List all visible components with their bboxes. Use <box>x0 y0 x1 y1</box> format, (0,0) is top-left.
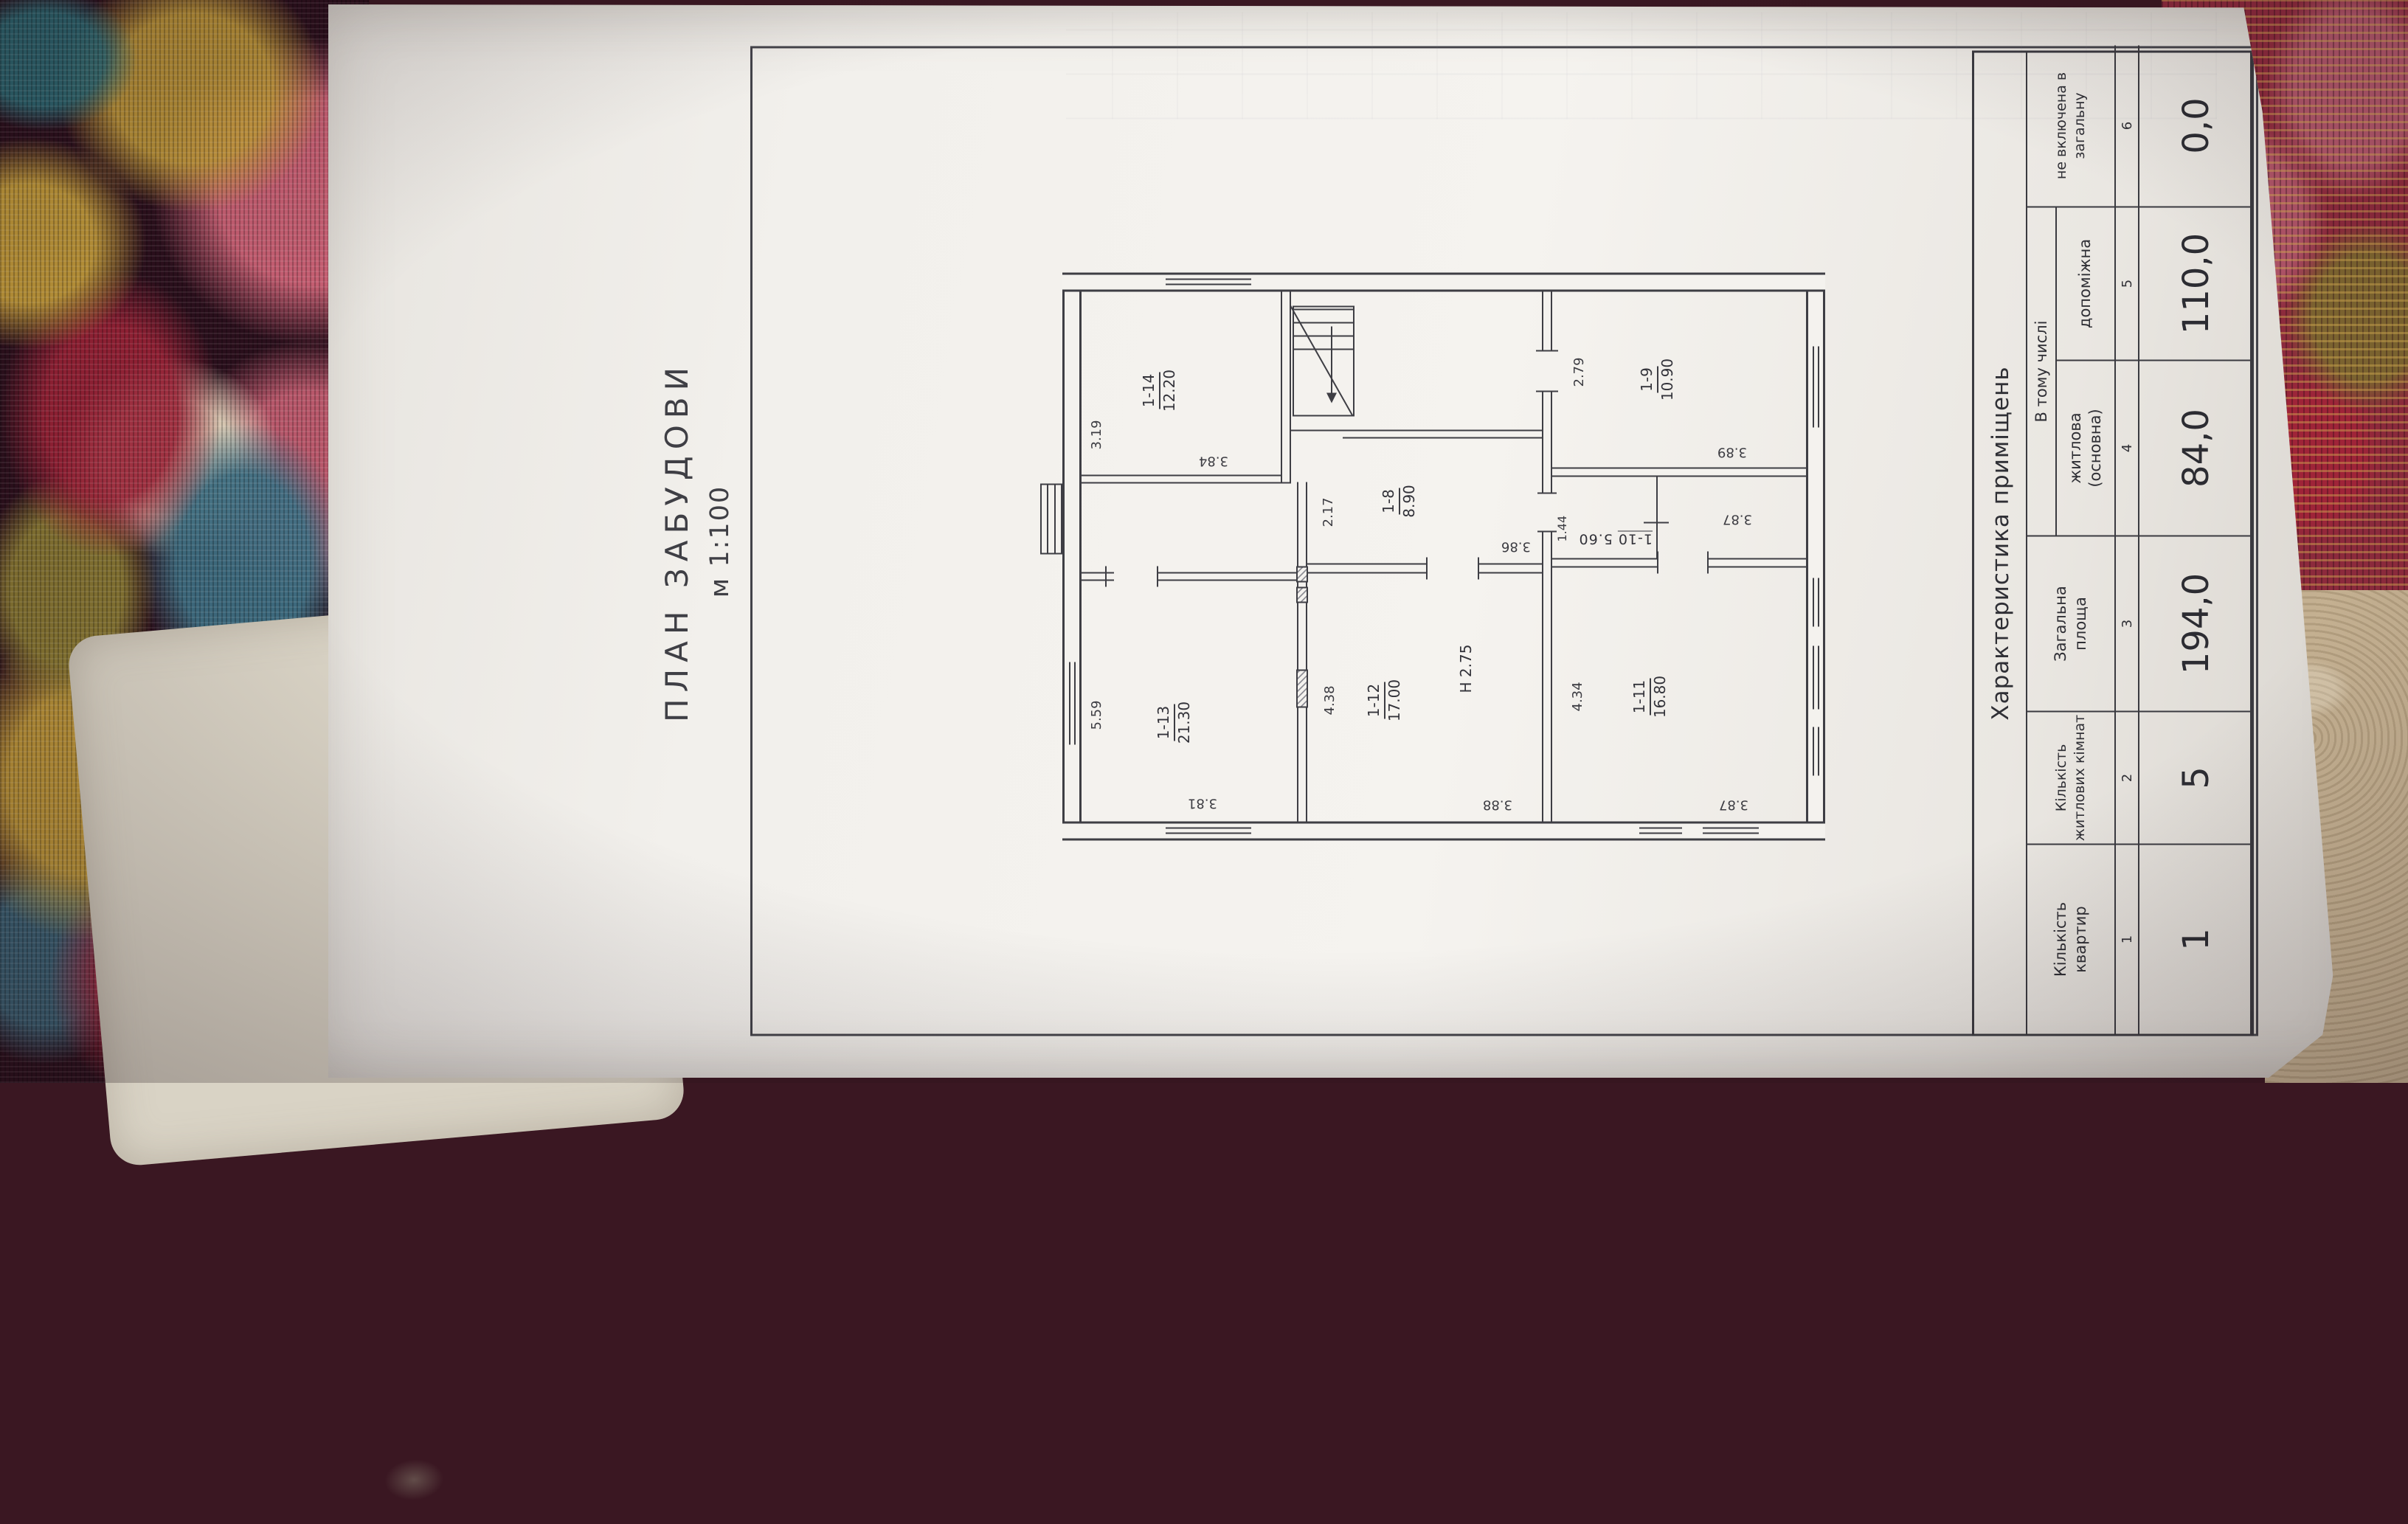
dim-1-9-width: 2.79 <box>1571 357 1587 387</box>
room-label-1-8: 1-8 8.90 <box>1380 457 1419 545</box>
dim-1-11-depth: 3.87 <box>1682 797 1748 812</box>
flue-block-b <box>1296 586 1308 603</box>
door-tick <box>1536 350 1558 351</box>
wall-room12-right-upper <box>1307 563 1428 573</box>
document-title-block: ПЛАН ЗАБУДОВИ м 1:100 <box>659 4 735 1078</box>
wall-room8-stairhall <box>1343 429 1542 438</box>
window-top-wall <box>1062 662 1082 744</box>
door-tick <box>1478 557 1479 579</box>
door-vestibule-hall <box>1282 361 1290 405</box>
window-left-wall-room13 <box>1166 821 1251 840</box>
floor-plan: 1-13 21.30 5.59 3.81 1-14 12.20 3.19 3.8… <box>1062 272 1825 840</box>
room-area: 21.30 <box>1175 674 1194 770</box>
col-header-not-included: не включена в загальну <box>2027 45 2114 206</box>
window-right-wall-room14 <box>1166 272 1251 291</box>
table-title: Характеристика приміщень <box>1974 52 2027 1033</box>
door-tick <box>1157 566 1158 586</box>
room-area: 8.90 <box>1400 457 1419 545</box>
wall-mid-bottom-center <box>1542 390 1552 493</box>
col-header-apartments: Кількість квартир <box>2027 843 2114 1033</box>
dim-1-9-depth: 3.89 <box>1681 444 1747 460</box>
dim-1-14-width: 3.19 <box>1089 420 1104 449</box>
stair-tread <box>1294 322 1353 323</box>
dim-1-10-depth: 3.87 <box>1686 511 1752 527</box>
col-num-2: 2 <box>2114 710 2138 843</box>
room-area: 10.90 <box>1658 331 1677 427</box>
entry-door-opening <box>1065 492 1079 545</box>
wall-mid-bottom-right <box>1542 291 1552 350</box>
col-num-5: 5 <box>2114 206 2138 359</box>
exterior-wall-top <box>1062 272 1082 840</box>
felt-stain <box>383 1457 445 1503</box>
room-label-1-9: 1-9 10.90 <box>1638 331 1677 427</box>
room-label-1-13: 1-13 21.30 <box>1155 674 1194 770</box>
door-tick <box>1537 530 1557 532</box>
door-tick <box>1536 390 1558 392</box>
page-title: ПЛАН ЗАБУДОВИ <box>659 4 695 1078</box>
room-area: 17.00 <box>1385 652 1404 748</box>
room10-divider-line <box>1656 477 1658 558</box>
wall-room10-room9 <box>1552 467 1806 477</box>
value-not-included-area: 0,0 <box>2138 45 2252 206</box>
window-bottom-wall-a <box>1806 727 1825 775</box>
door-tick <box>1426 557 1428 579</box>
col-num-6: 6 <box>2114 45 2138 206</box>
stair-direction-arrow <box>1331 326 1332 394</box>
document-content-upright: ПЛАН ЗАБУДОВИ м 1:100 <box>328 4 2401 1078</box>
dim-1-8-depth: 3.86 <box>1464 538 1531 554</box>
dim-1-14-depth: 3.84 <box>1162 453 1228 468</box>
stair-tread <box>1294 308 1353 310</box>
document-page: ПЛАН ЗАБУДОВИ м 1:100 <box>328 4 2401 1078</box>
value-living-area: 84,0 <box>2138 359 2252 535</box>
window-bottom-wall-room9 <box>1806 346 1825 427</box>
door-room13-room12 <box>1298 620 1306 663</box>
door-tick <box>1105 566 1107 586</box>
dim-1-10-width: 1.44 <box>1555 515 1569 541</box>
window-bottom-wall-c <box>1806 578 1825 626</box>
wall-room13-vestibule-lower <box>1158 572 1300 581</box>
window-bottom-wall-b <box>1806 645 1825 709</box>
value-apartments: 1 <box>2138 843 2252 1033</box>
dim-1-12-width: 4.38 <box>1322 685 1338 715</box>
dim-1-12-depth: 3.88 <box>1446 797 1512 812</box>
window-left-wall-room11-b <box>1703 821 1759 840</box>
dim-1-13-width: 5.59 <box>1089 700 1104 730</box>
room-area: 16.80 <box>1651 648 1670 744</box>
height-note-1-12: Н 2.75 <box>1457 644 1475 693</box>
wall-room11-room10-upper <box>1552 558 1658 567</box>
value-living-rooms: 5 <box>2138 710 2252 843</box>
stair-arrow-head <box>1326 392 1337 403</box>
door-tick <box>1537 492 1557 493</box>
col-header-total-area: Загальна площа <box>2027 535 2114 710</box>
col-header-auxiliary: допоміжна <box>2057 206 2114 359</box>
col-num-1: 1 <box>2114 843 2138 1033</box>
entry-porch-steps <box>1040 483 1062 554</box>
col-num-3: 3 <box>2114 535 2138 710</box>
wall-room13-vestibule-upper <box>1082 572 1114 581</box>
flue-block-a <box>1296 669 1308 707</box>
dim-1-11-width: 4.34 <box>1570 682 1585 711</box>
room-label-1-14: 1-14 12.20 <box>1140 342 1179 438</box>
window-left-wall-room11-a <box>1639 821 1682 840</box>
characteristics-table: Характеристика приміщень Кількість кварт… <box>1972 50 2254 1036</box>
col-header-living-rooms: Кількість житлових кімнат <box>2027 710 2114 843</box>
door-tick <box>1707 551 1709 573</box>
door-tick <box>1291 429 1344 431</box>
photo-of-floor-plan-document: { "document": { "title": "ПЛАН ЗАБУДОВИ"… <box>0 0 2408 1083</box>
wall-room12-right-lower <box>1479 563 1542 573</box>
wall-vestibule-room14 <box>1082 474 1291 483</box>
staircase <box>1293 305 1354 416</box>
room-area: 5.60 <box>1579 530 1613 547</box>
room-label-1-12: 1-12 17.00 <box>1365 652 1404 748</box>
room-area: 12.20 <box>1160 342 1179 438</box>
wall-mid-bottom-left <box>1542 530 1552 821</box>
room-label-1-11: 1-11 16.80 <box>1630 648 1670 744</box>
stair-tread <box>1294 348 1353 350</box>
value-total-area: 194,0 <box>2138 535 2252 710</box>
dim-1-13-depth: 3.81 <box>1151 795 1217 811</box>
flue-block-c <box>1296 566 1308 582</box>
door-tick <box>1657 551 1658 573</box>
wall-room11-room10-lower <box>1709 558 1806 567</box>
scale-note: м 1:100 <box>705 4 735 1078</box>
room-label-1-10: 1-10 5.60 <box>1571 530 1653 547</box>
value-auxiliary-area: 110,0 <box>2138 206 2252 359</box>
col-header-living-main: житлова (основна) <box>2057 359 2114 535</box>
stair-tread <box>1294 335 1353 336</box>
door-tick <box>1644 522 1669 523</box>
group-header-including: В тому числі <box>2027 206 2057 535</box>
dim-1-8-width: 2.17 <box>1321 497 1336 527</box>
col-num-4: 4 <box>2114 359 2138 535</box>
